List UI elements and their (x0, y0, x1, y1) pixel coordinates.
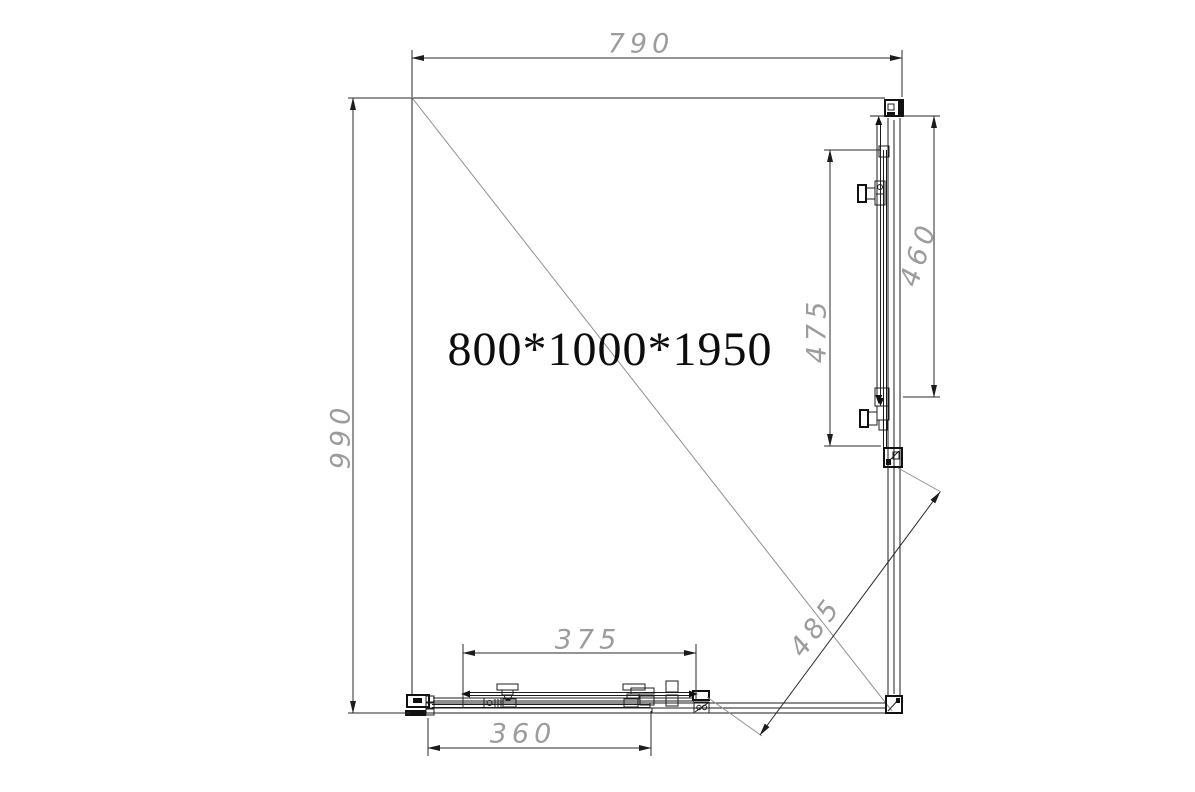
dimension-990 (348, 98, 412, 713)
dim-label-375: 375 (555, 627, 622, 654)
dimension-475 (824, 150, 881, 446)
rail-end-arrow-top (875, 116, 882, 125)
track-corner-junction (886, 696, 902, 713)
wall-bracket-top-right (885, 99, 904, 117)
rail-end-arrow-left (461, 691, 470, 698)
dim-label-790: 790 (608, 31, 675, 58)
right-track-band (888, 118, 900, 696)
track-stopper-blocks (666, 681, 678, 706)
drawing-canvas (0, 0, 1195, 792)
dim-label-990: 990 (328, 403, 355, 470)
right-door-assembly (858, 116, 902, 467)
dim-label-475: 475 (804, 297, 831, 364)
dim-label-360: 360 (490, 721, 557, 748)
product-size-label: 800*1000*1950 (448, 326, 773, 374)
shower-enclosure-plan-drawing: 790 990 375 360 475 460 485 800*1000*195… (0, 0, 1195, 792)
right-door-bottom-roller (860, 388, 889, 430)
corner-bracket-right (884, 448, 902, 467)
